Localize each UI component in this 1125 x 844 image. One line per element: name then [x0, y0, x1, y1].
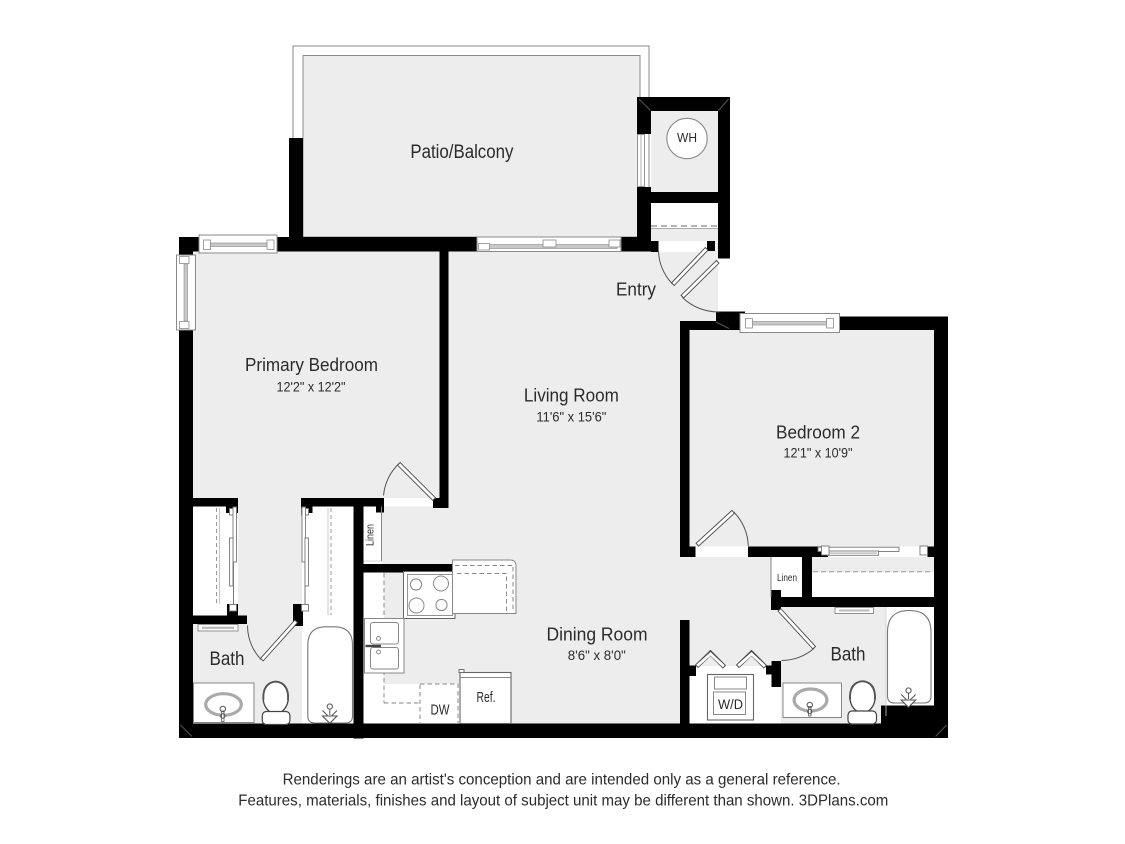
svg-text:Dining Room: Dining Room	[547, 625, 648, 645]
svg-text:12'2" x 12'2": 12'2" x 12'2"	[277, 379, 346, 395]
svg-text:WH: WH	[677, 131, 697, 145]
svg-text:Renderings are an artist's con: Renderings are an artist's conception an…	[283, 772, 841, 789]
svg-text:Patio/Balcony: Patio/Balcony	[410, 142, 513, 163]
svg-text:Linen: Linen	[777, 572, 797, 584]
svg-text:W/D: W/D	[718, 696, 743, 712]
svg-text:DW: DW	[431, 703, 450, 719]
svg-text:Living Room: Living Room	[524, 386, 619, 406]
svg-text:Bath: Bath	[831, 644, 866, 666]
svg-text:Linen: Linen	[365, 524, 377, 546]
svg-text:8'6" x 8'0": 8'6" x 8'0"	[568, 647, 626, 663]
svg-text:Entry: Entry	[616, 280, 656, 300]
svg-text:Bath: Bath	[210, 648, 245, 670]
svg-text:Features, materials, finishes: Features, materials, finishes and layout…	[238, 793, 888, 810]
svg-text:Bedroom 2: Bedroom 2	[776, 423, 860, 443]
svg-text:12'1" x 10'9": 12'1" x 10'9"	[784, 445, 853, 461]
svg-text:Ref.: Ref.	[477, 690, 496, 706]
svg-text:Primary Bedroom: Primary Bedroom	[245, 355, 378, 375]
svg-text:11'6" x 15'6": 11'6" x 15'6"	[536, 409, 606, 425]
